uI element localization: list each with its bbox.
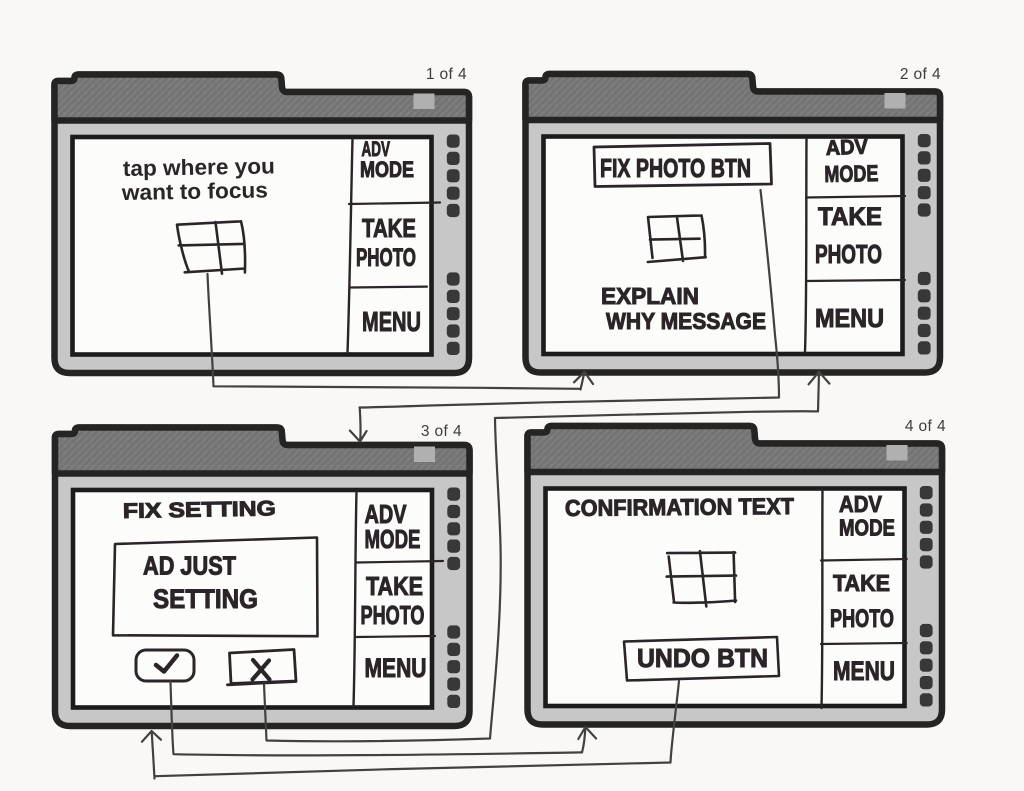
svg-text:MENU: MENU xyxy=(833,656,895,686)
svg-text:TAKE: TAKE xyxy=(818,203,882,231)
svg-text:FIX SETTING: FIX SETTING xyxy=(123,497,276,523)
svg-text:MODE: MODE xyxy=(824,160,878,187)
svg-text:MODE: MODE xyxy=(360,157,414,182)
svg-text:1 of 4: 1 of 4 xyxy=(426,66,467,83)
svg-text:TAKE: TAKE xyxy=(362,213,416,243)
svg-text:ADV: ADV xyxy=(839,491,883,517)
svg-text:PHOTO: PHOTO xyxy=(815,239,882,269)
svg-text:FIX PHOTO BTN: FIX PHOTO BTN xyxy=(600,153,751,183)
svg-text:4 of 4: 4 of 4 xyxy=(905,418,946,435)
svg-text:WHY MESSAGE: WHY MESSAGE xyxy=(606,308,766,334)
svg-text:MODE: MODE xyxy=(365,524,421,554)
svg-text:PHOTO: PHOTO xyxy=(830,605,894,633)
svg-text:CONFIRMATION TEXT: CONFIRMATION TEXT xyxy=(565,493,794,521)
svg-text:3 of 4: 3 of 4 xyxy=(421,423,462,440)
svg-text:AD JUST: AD JUST xyxy=(143,551,236,581)
svg-text:UNDO BTN: UNDO BTN xyxy=(637,643,768,673)
svg-text:EXPLAIN: EXPLAIN xyxy=(601,283,699,309)
svg-text:MENU: MENU xyxy=(362,306,421,337)
svg-text:want to focus: want to focus xyxy=(121,177,268,205)
svg-text:PHOTO: PHOTO xyxy=(356,244,416,272)
svg-text:PHOTO: PHOTO xyxy=(361,600,425,630)
svg-text:TAKE: TAKE xyxy=(833,570,890,596)
svg-text:MENU: MENU xyxy=(815,303,884,333)
svg-text:MODE: MODE xyxy=(839,515,895,541)
svg-text:TAKE: TAKE xyxy=(366,571,423,601)
svg-text:ADV: ADV xyxy=(825,136,868,160)
svg-text:MENU: MENU xyxy=(365,653,427,683)
svg-text:2 of 4: 2 of 4 xyxy=(900,66,941,83)
svg-text:SETTING: SETTING xyxy=(153,584,258,614)
